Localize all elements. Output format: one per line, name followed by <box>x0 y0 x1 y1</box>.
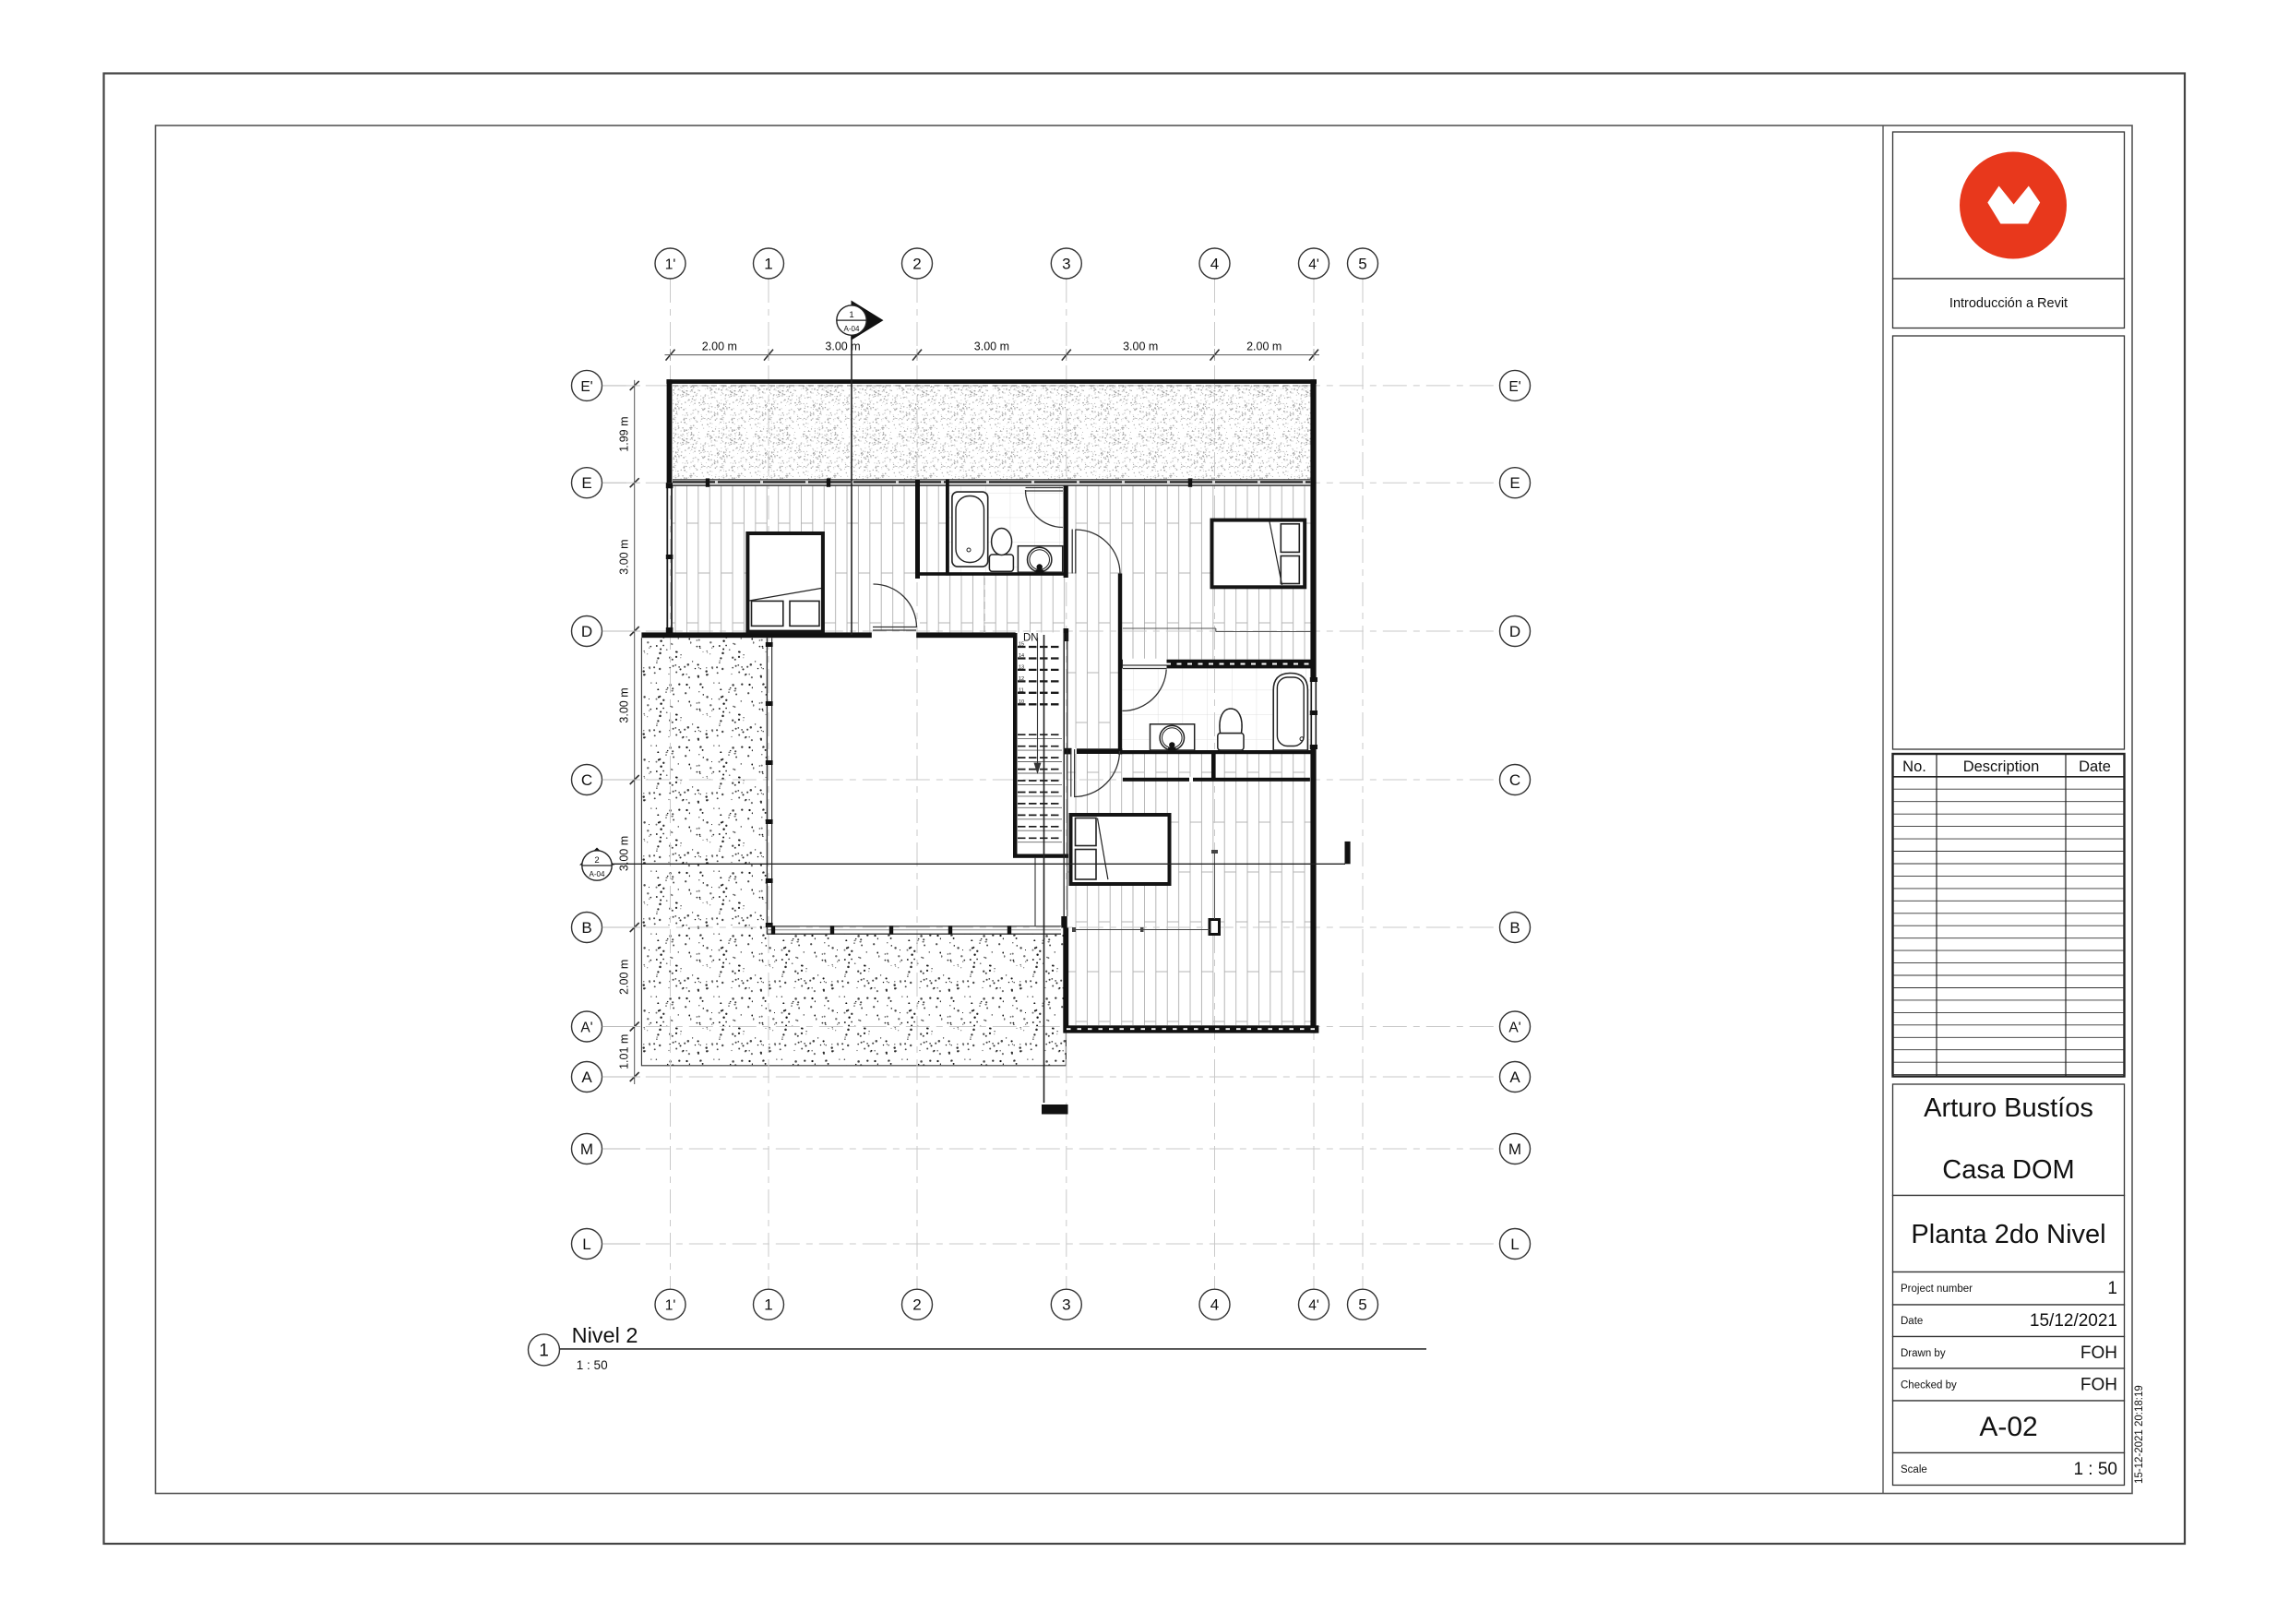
svg-text:1': 1' <box>665 257 676 273</box>
svg-text:Introducción a Revit: Introducción a Revit <box>1949 296 2068 311</box>
svg-text:A: A <box>581 1069 592 1086</box>
svg-text:A': A' <box>580 1021 592 1036</box>
svg-text:2.00 m: 2.00 m <box>618 960 631 995</box>
svg-text:1: 1 <box>849 310 853 320</box>
svg-text:E: E <box>1509 474 1520 492</box>
svg-text:E: E <box>581 474 591 492</box>
svg-text:Project number: Project number <box>1901 1284 1973 1295</box>
svg-text:M: M <box>580 1140 593 1158</box>
svg-text:3.00 m: 3.00 m <box>618 539 631 574</box>
svg-text:1.99 m: 1.99 m <box>618 416 631 451</box>
svg-text:C: C <box>581 771 592 789</box>
svg-text:3.00 m: 3.00 m <box>974 340 1009 353</box>
svg-text:Date: Date <box>1901 1316 1923 1327</box>
svg-text:Drawn by: Drawn by <box>1901 1348 1946 1359</box>
svg-text:1.01 m: 1.01 m <box>618 1034 631 1069</box>
svg-text:FOH: FOH <box>2080 1343 2117 1363</box>
svg-text:1: 1 <box>2107 1279 2117 1298</box>
svg-text:Date: Date <box>2079 758 2111 775</box>
svg-text:1: 1 <box>764 256 772 273</box>
svg-text:L: L <box>1510 1236 1519 1253</box>
svg-text:Nivel 2: Nivel 2 <box>572 1323 638 1347</box>
svg-text:A: A <box>1509 1069 1520 1086</box>
svg-text:15-12-2021 20:18:19: 15-12-2021 20:18:19 <box>2134 1385 2145 1484</box>
svg-text:Arturo Bustíos: Arturo Bustíos <box>1924 1093 2093 1123</box>
svg-text:3.00 m: 3.00 m <box>1123 340 1158 353</box>
svg-text:B: B <box>1509 919 1520 937</box>
svg-text:Scale: Scale <box>1901 1464 1927 1475</box>
svg-text:3: 3 <box>1062 256 1070 273</box>
svg-text:4': 4' <box>1308 257 1319 273</box>
svg-text:Checked by: Checked by <box>1901 1380 1957 1391</box>
svg-text:A-02: A-02 <box>1979 1412 2037 1442</box>
svg-text:A-04: A-04 <box>844 325 860 333</box>
svg-text:1: 1 <box>539 1342 549 1361</box>
svg-text:2.00 m: 2.00 m <box>702 340 737 353</box>
svg-text:4: 4 <box>1210 1296 1219 1314</box>
svg-text:1 : 50: 1 : 50 <box>2073 1460 2117 1479</box>
svg-text:A': A' <box>1508 1021 1520 1036</box>
svg-text:E': E' <box>580 379 592 395</box>
svg-text:2: 2 <box>912 256 921 273</box>
svg-text:D: D <box>581 623 592 640</box>
svg-text:L: L <box>582 1236 590 1253</box>
svg-text:C: C <box>1509 771 1520 789</box>
svg-text:DN: DN <box>1023 633 1039 644</box>
svg-text:4': 4' <box>1308 1298 1319 1314</box>
svg-text:Description: Description <box>1963 758 2040 775</box>
svg-text:5: 5 <box>1358 1296 1366 1314</box>
svg-text:1': 1' <box>665 1298 676 1314</box>
svg-text:A-04: A-04 <box>590 870 605 878</box>
svg-text:2: 2 <box>912 1296 921 1314</box>
svg-text:E': E' <box>1508 379 1520 395</box>
svg-text:Planta 2do Nivel: Planta 2do Nivel <box>1911 1220 2105 1249</box>
svg-text:1 : 50: 1 : 50 <box>577 1358 608 1372</box>
svg-text:2: 2 <box>594 855 599 866</box>
svg-text:3.00 m: 3.00 m <box>825 340 860 353</box>
svg-text:1: 1 <box>764 1296 772 1314</box>
svg-text:Casa DOM: Casa DOM <box>1942 1155 2074 1185</box>
svg-text:3.00 m: 3.00 m <box>618 687 631 722</box>
svg-text:2.00 m: 2.00 m <box>1246 340 1282 353</box>
svg-text:No.: No. <box>1902 758 1926 775</box>
svg-text:5: 5 <box>1358 256 1366 273</box>
svg-text:M: M <box>1508 1140 1521 1158</box>
svg-text:D: D <box>1509 623 1520 640</box>
svg-text:3: 3 <box>1062 1296 1070 1314</box>
svg-text:B: B <box>581 919 591 937</box>
svg-text:15/12/2021: 15/12/2021 <box>2030 1311 2117 1331</box>
svg-text:4: 4 <box>1210 256 1219 273</box>
svg-text:3.00 m: 3.00 m <box>618 836 631 871</box>
svg-text:FOH: FOH <box>2080 1376 2117 1395</box>
